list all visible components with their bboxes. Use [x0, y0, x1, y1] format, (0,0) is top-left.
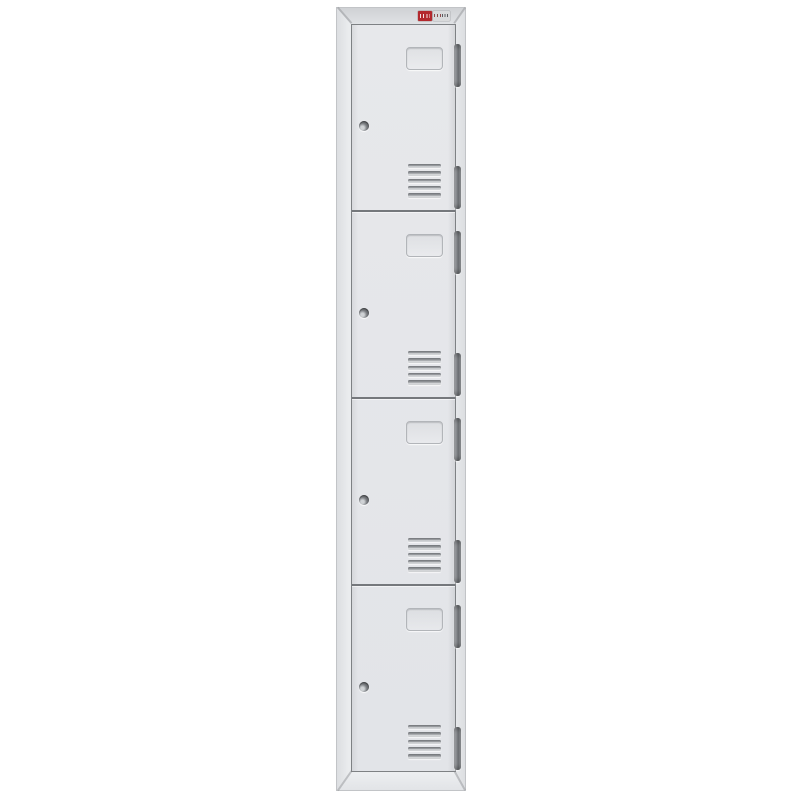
vent-slat: [408, 553, 441, 558]
louver-vent-grille: [408, 538, 441, 572]
locker-door: [352, 25, 455, 210]
hinge-top: [454, 231, 461, 274]
hinge-bottom: [454, 353, 461, 396]
vent-slat: [408, 732, 441, 737]
vent-slat: [408, 373, 441, 378]
hinge-bottom: [454, 540, 461, 583]
vent-slat: [408, 740, 441, 745]
recessed-handle: [406, 421, 443, 444]
cam-lock-icon: [359, 495, 369, 505]
locker-door: [352, 584, 455, 771]
vent-slat: [408, 193, 441, 198]
hinge-bottom: [454, 727, 461, 770]
vent-slat: [408, 380, 441, 385]
vent-slat: [408, 164, 441, 169]
hinge-top: [454, 418, 461, 461]
cam-lock-icon: [359, 682, 369, 692]
cam-lock-icon: [359, 308, 369, 318]
locker-door: [352, 397, 455, 584]
louver-vent-grille: [408, 351, 441, 385]
vent-slat: [408, 754, 441, 759]
vent-slat: [408, 366, 441, 371]
brand-logo-text-panel: [433, 11, 450, 21]
locker-door: [352, 210, 455, 397]
vent-slat: [408, 351, 441, 356]
brand-logo: [418, 11, 450, 21]
recessed-handle: [406, 47, 443, 70]
product-photo: [0, 0, 800, 800]
vent-slat: [408, 567, 441, 572]
vent-slat: [408, 186, 441, 191]
hinge-bottom: [454, 166, 461, 209]
recessed-handle: [406, 234, 443, 257]
cam-lock-icon: [359, 121, 369, 131]
locker-cabinet: [336, 7, 466, 791]
vent-slat: [408, 171, 441, 176]
vent-slat: [408, 358, 441, 363]
louver-vent-grille: [408, 725, 441, 759]
locker-bottom-frame: [337, 770, 465, 790]
hinge-top: [454, 605, 461, 648]
brand-logo-red-bar: [418, 11, 432, 21]
hinge-top: [454, 44, 461, 87]
vent-slat: [408, 545, 441, 550]
vent-slat: [408, 725, 441, 730]
vent-slat: [408, 179, 441, 184]
vent-slat: [408, 560, 441, 565]
locker-door-column: [351, 24, 456, 772]
recessed-handle: [406, 608, 443, 631]
vent-slat: [408, 747, 441, 752]
vent-slat: [408, 538, 441, 543]
louver-vent-grille: [408, 164, 441, 198]
